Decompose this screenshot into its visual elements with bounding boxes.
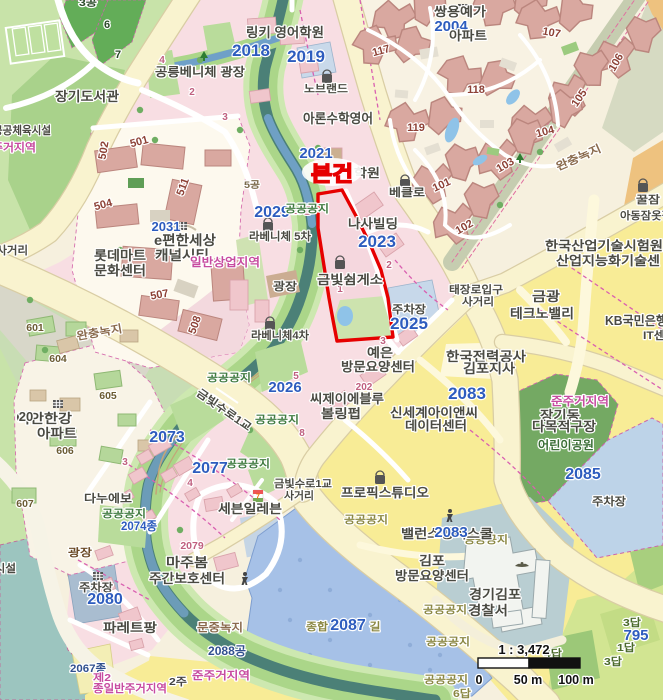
svg-text:공공공지: 공공공지 (426, 635, 470, 648)
svg-text:3답: 3답 (604, 656, 622, 668)
svg-text:금빛수로1교: 금빛수로1교 (274, 477, 332, 490)
svg-text:금빛쉼게소: 금빛쉼게소 (317, 272, 384, 287)
svg-text:e편한세상: e편한세상 (154, 232, 217, 248)
svg-text:20: 20 (19, 409, 33, 424)
svg-text:노브랜드: 노브랜드 (304, 82, 348, 95)
svg-text:꿀잠: 꿀잠 (636, 193, 660, 206)
svg-text:예은: 예은 (367, 345, 394, 360)
svg-text:공공공지: 공공공지 (285, 202, 329, 215)
svg-text:종일반주거지역: 종일반주거지역 (93, 681, 167, 695)
svg-text:607: 607 (16, 498, 34, 510)
svg-text:장기도서관: 장기도서관 (55, 89, 119, 104)
svg-text:준주거지역: 준주거지역 (551, 394, 609, 408)
svg-text:6답: 6답 (453, 688, 471, 700)
svg-text:2077: 2077 (192, 460, 228, 477)
svg-text:프로픽스튜디오: 프로픽스튜디오 (341, 485, 430, 500)
svg-text:604: 604 (49, 353, 67, 365)
svg-text:김포: 김포 (419, 553, 446, 568)
svg-text:2: 2 (386, 260, 392, 271)
svg-text:아파트: 아파트 (37, 426, 77, 441)
svg-text:1 : 3,472: 1 : 3,472 (498, 642, 549, 657)
svg-text:주거지역: 주거지역 (0, 140, 36, 154)
svg-text:주차장: 주차장 (592, 494, 626, 508)
svg-text:3답: 3답 (623, 617, 641, 629)
svg-text:7: 7 (256, 494, 260, 501)
svg-text:베클로: 베클로 (389, 185, 425, 199)
svg-text:일반상업지역: 일반상업지역 (190, 255, 260, 269)
svg-text:5공: 5공 (244, 180, 260, 191)
svg-text:2087: 2087 (330, 617, 366, 634)
svg-text:방문요양센터: 방문요양센터 (395, 568, 469, 583)
svg-text:KB국민은행: KB국민은행 (605, 313, 663, 328)
svg-text:2025: 2025 (390, 314, 428, 333)
svg-text:IT센: IT센 (643, 328, 663, 342)
svg-text:8: 8 (299, 428, 305, 439)
svg-text:2018: 2018 (232, 41, 270, 60)
svg-text:3: 3 (380, 336, 386, 347)
svg-text:준주거지역: 준주거지역 (192, 668, 250, 682)
svg-text:2023: 2023 (358, 232, 396, 251)
svg-text:나사빌딩: 나사빌딩 (348, 216, 398, 231)
svg-text:3: 3 (222, 112, 228, 123)
svg-text:공공공지: 공공공지 (207, 371, 251, 384)
svg-text:605: 605 (99, 390, 117, 402)
svg-text:라베니체 5차: 라베니체 5차 (249, 229, 312, 243)
svg-text:링키 영어학원: 링키 영어학원 (246, 25, 324, 40)
svg-text:7: 7 (115, 49, 121, 61)
svg-text:2085: 2085 (565, 466, 601, 483)
svg-text:601: 601 (26, 322, 44, 334)
svg-text:공릉베니체 광장: 공릉베니체 광장 (155, 64, 245, 79)
svg-text:2026: 2026 (268, 379, 301, 396)
svg-text:공공공지: 공공공지 (423, 603, 467, 616)
svg-text:쌍용예가: 쌍용예가 (434, 4, 487, 19)
svg-text:파레트팡: 파레트팡 (103, 620, 158, 635)
svg-text:롯데마트: 롯데마트 (94, 248, 146, 263)
svg-text:어린이공원: 어린이공원 (538, 438, 594, 452)
svg-text:2주: 2주 (169, 676, 187, 688)
svg-text:118: 118 (467, 84, 485, 96)
svg-text:본건: 본건 (311, 163, 353, 186)
svg-text:아동잠옷집: 아동잠옷집 (620, 209, 663, 222)
svg-text:아론수학영어: 아론수학영어 (303, 111, 373, 126)
svg-text:한국산업기술시험원: 한국산업기술시험원 (545, 238, 663, 253)
svg-text:2019: 2019 (287, 47, 325, 66)
svg-text:606: 606 (56, 445, 74, 457)
svg-text:광장: 광장 (68, 546, 92, 559)
svg-text:2031: 2031 (152, 219, 181, 234)
svg-text:경기김포: 경기김포 (469, 587, 521, 602)
svg-text:2083: 2083 (434, 524, 467, 541)
svg-text:6: 6 (104, 19, 110, 31)
svg-text:1답: 1답 (617, 642, 635, 654)
svg-text:테크노밸리: 테크노밸리 (510, 306, 574, 321)
svg-text:공공공지: 공공공지 (255, 413, 299, 426)
svg-text:태장로입구: 태장로입구 (449, 283, 503, 296)
svg-text:2088공: 2088공 (208, 644, 246, 658)
svg-text:119: 119 (407, 122, 425, 134)
svg-text:2074종: 2074종 (121, 519, 157, 533)
svg-text:2073: 2073 (149, 429, 185, 446)
svg-text:공공공지: 공공공지 (344, 513, 388, 526)
svg-text:데이터센터: 데이터센터 (405, 418, 467, 433)
svg-text:씨제이에블루: 씨제이에블루 (310, 391, 385, 406)
svg-text:공공체육시설: 공공체육시설 (0, 123, 51, 137)
svg-text:2083: 2083 (448, 384, 486, 403)
svg-text:공공공지: 공공공지 (226, 457, 270, 470)
svg-text:4: 4 (187, 478, 193, 489)
svg-text:디시설: 디시설 (0, 561, 16, 575)
svg-text:2079: 2079 (180, 540, 204, 552)
svg-text:세븐일레븐: 세븐일레븐 (218, 501, 283, 516)
svg-text:경찰서: 경찰서 (468, 603, 508, 618)
svg-text:방문요양센터: 방문요양센터 (341, 359, 415, 374)
svg-text:마주봄: 마주봄 (166, 555, 208, 570)
svg-text:0: 0 (476, 673, 483, 687)
svg-text:문화센터: 문화센터 (94, 263, 146, 278)
svg-text:신세계아이앤씨: 신세계아이앤씨 (390, 405, 478, 420)
svg-text:50 m: 50 m (514, 673, 543, 687)
svg-text:3: 3 (122, 457, 128, 468)
svg-text:사거리: 사거리 (462, 295, 494, 308)
svg-text:공공공지: 공공공지 (424, 673, 468, 686)
svg-text:아파트: 아파트 (449, 28, 488, 43)
svg-text:주간보호센터: 주간보호센터 (149, 571, 225, 586)
svg-text:3공: 3공 (79, 0, 97, 9)
svg-text:2080: 2080 (87, 591, 123, 608)
svg-text:종합: 종합 (306, 620, 328, 633)
svg-text:금광: 금광 (532, 289, 560, 304)
svg-text:광장: 광장 (273, 279, 297, 293)
svg-text:다목적구장: 다목적구장 (532, 419, 596, 434)
svg-text:산업지능화기술센: 산업지능화기술센 (556, 253, 660, 268)
svg-text:2: 2 (189, 87, 195, 98)
svg-text:볼링펍: 볼링펍 (321, 406, 361, 421)
svg-text:사거리: 사거리 (284, 489, 314, 502)
svg-text:100 m: 100 m (558, 673, 593, 687)
svg-text:문중녹지: 문중녹지 (197, 620, 243, 634)
svg-text:가현 사거리: 가현 사거리 (0, 243, 28, 257)
svg-text:다누에보: 다누에보 (84, 491, 132, 505)
svg-text:4: 4 (159, 55, 165, 66)
svg-text:라베니체4차: 라베니체4차 (251, 328, 310, 342)
svg-text:길: 길 (370, 620, 381, 633)
svg-text:김포지사: 김포지사 (463, 361, 515, 376)
